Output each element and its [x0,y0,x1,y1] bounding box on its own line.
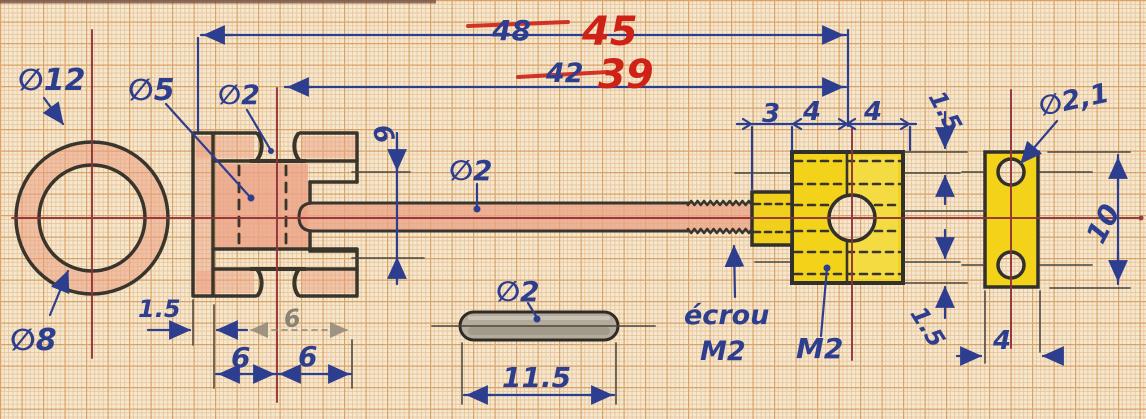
label-plate-width: 4 [992,326,1011,356]
label-nut-note-size: M2 [700,336,746,367]
yellow-parts [752,152,1038,287]
label-shaft-diameter: ∅2 [449,154,492,187]
label-body-bore-diameter: ∅5 [128,73,175,108]
label-overall-new: 45 [581,9,638,55]
label-pin-length: 11.5 [502,361,571,394]
paper-edge-artifact [0,0,436,4]
technical-drawing: ∅12 ∅8 ∅5 ∅2 48 45 42 39 1.5 6 6 6 6 ∅2 … [0,0,1146,419]
drawing-canvas: ∅12 ∅8 ∅5 ∅2 48 45 42 39 1.5 6 6 6 6 ∅2 … [0,0,1146,419]
label-second-new: 39 [598,52,654,98]
label-body-groove-diameter: ∅2 [218,80,260,111]
label-nut-note-word: écrou [684,300,769,331]
label-second-old: 42 [545,58,584,89]
label-body-width-left: 6 [231,341,250,374]
label-ring-inner-diameter: ∅8 [10,323,57,358]
label-block-seg3: 4 [863,97,882,127]
label-block-seg2: 4 [802,97,821,127]
leader-ecrou [734,246,735,297]
label-ring-outer-diameter: ∅12 [18,63,85,98]
label-pin-diameter: ∅2 [496,275,539,308]
label-wall-thickness: 1.5 [138,295,181,323]
label-block-thread: M2 [796,332,843,365]
label-overall-old: 48 [491,14,531,47]
label-block-seg1: 3 [762,99,780,129]
label-body-width-right: 6 [298,340,317,373]
